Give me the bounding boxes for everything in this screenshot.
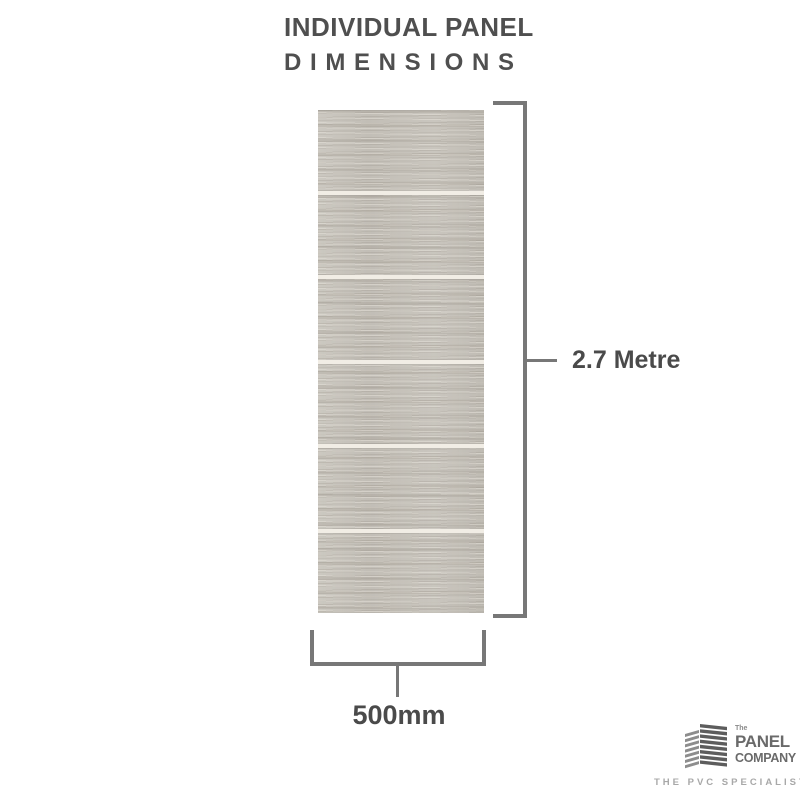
panel-section	[318, 279, 484, 360]
brand-tagline: THE PVC SPECIALISTS	[654, 777, 800, 788]
brand-logo: The PANEL COMPANY THE PVC SPECIALISTS	[683, 721, 795, 771]
panel-section	[318, 533, 484, 614]
panel-stack	[318, 110, 484, 613]
title-line1: INDIVIDUAL PANEL	[284, 13, 534, 42]
stacked-panels-icon	[683, 721, 729, 771]
height-bracket-mid-tick	[527, 359, 557, 362]
infographic-canvas: INDIVIDUAL PANEL D I M E N S I O N S 2.7…	[0, 0, 800, 800]
brand-the: The	[735, 725, 796, 732]
page-title: INDIVIDUAL PANEL D I M E N S I O N S	[284, 13, 534, 76]
brand-panel: PANEL	[735, 733, 796, 750]
width-bracket-left-tick	[310, 630, 314, 666]
width-bracket-right-tick	[482, 630, 486, 666]
panel-section	[318, 448, 484, 529]
panel-section	[318, 195, 484, 276]
width-dimension-label: 500mm	[338, 700, 460, 731]
brand-wordmark: The PANEL COMPANY	[735, 721, 796, 765]
height-bracket-bottom-hook	[493, 614, 527, 618]
panel-section	[318, 364, 484, 445]
title-line2: D I M E N S I O N S	[284, 50, 534, 76]
height-dimension-label: 2.7 Metre	[572, 346, 680, 375]
panel-section	[318, 110, 484, 191]
height-bracket-top-hook	[493, 101, 527, 105]
brand-company: COMPANY	[735, 752, 796, 765]
width-bracket-stem	[396, 666, 399, 697]
